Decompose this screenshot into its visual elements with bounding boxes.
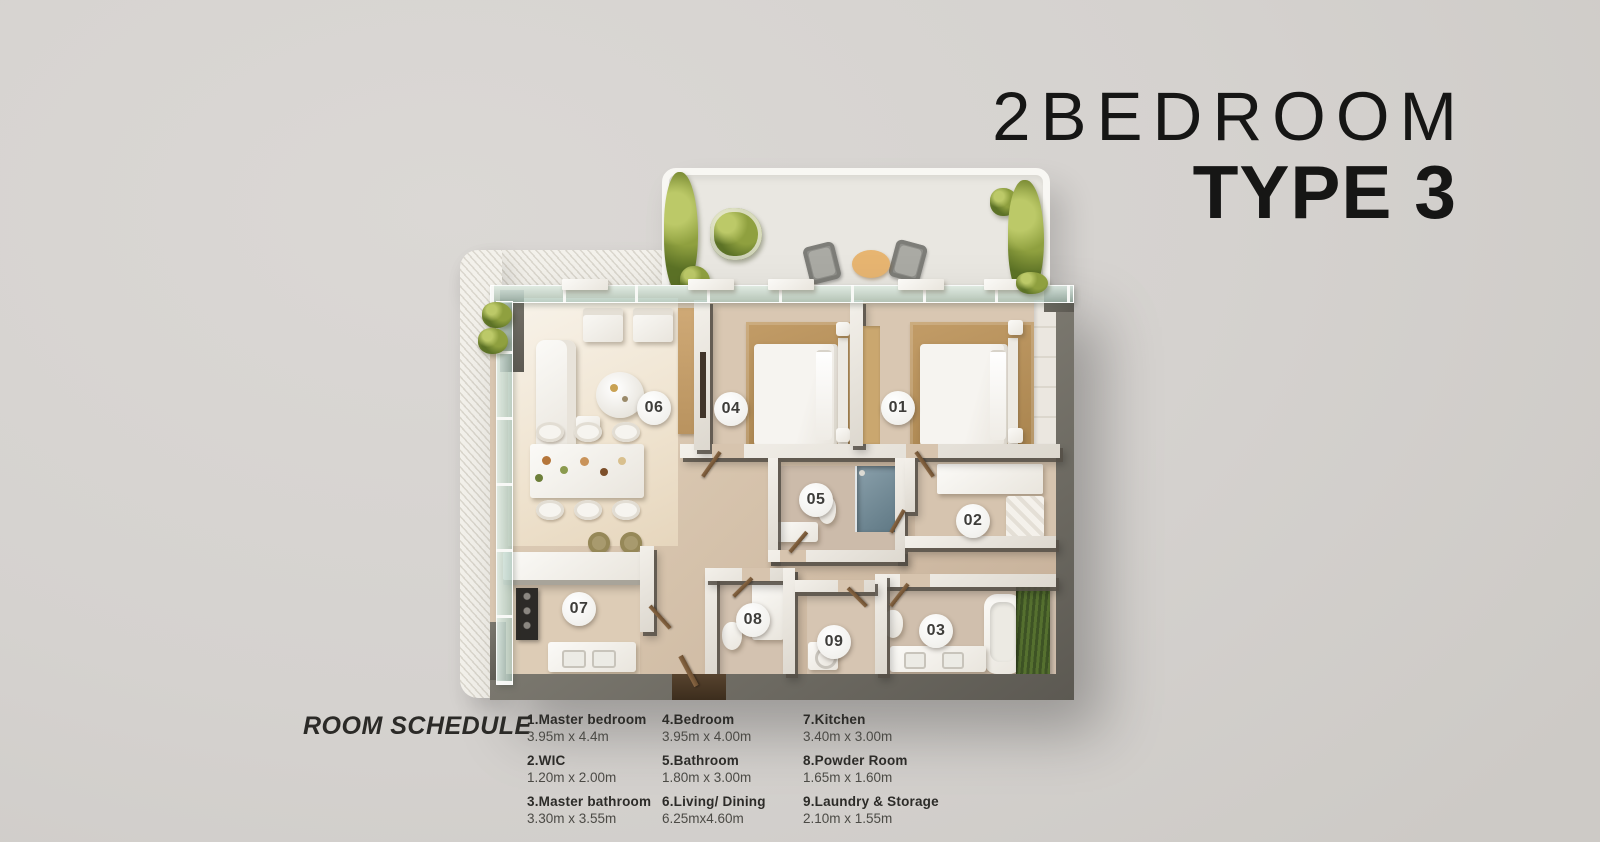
railing-sill <box>688 279 734 290</box>
schedule-room-name: 5.Bathroom <box>662 753 812 769</box>
nightstand <box>836 428 850 442</box>
schedule-room-dims: 2.10m x 1.55m <box>803 811 953 827</box>
bar-stool <box>620 532 642 554</box>
bar-stool <box>588 532 610 554</box>
wall <box>875 574 887 674</box>
wardrobe-bedroom-01 <box>1034 300 1056 446</box>
terrace-side-table <box>852 250 890 278</box>
nightstand <box>1008 428 1023 443</box>
dining-chair <box>574 500 602 520</box>
wall <box>905 536 1056 548</box>
table-plate <box>580 457 589 466</box>
wall <box>905 458 915 512</box>
wall <box>783 568 795 674</box>
railing-sill <box>768 279 814 290</box>
schedule-room-name: 9.Laundry & Storage <box>803 794 953 810</box>
schedule-entry: 9.Laundry & Storage 2.10m x 1.55m <box>803 794 953 827</box>
room-badge-04: 04 <box>714 392 748 426</box>
room-schedule-heading: ROOM SCHEDULE <box>303 712 532 741</box>
balcony-plant-icon <box>478 328 508 354</box>
nightstand <box>836 322 850 336</box>
bathroom-plant-strip-icon <box>1016 584 1050 680</box>
schedule-entry: 2.WIC 1.20m x 2.00m <box>527 753 677 786</box>
schedule-room-name: 2.WIC <box>527 753 677 769</box>
kitchen-sink <box>562 650 586 668</box>
room-badge-03: 03 <box>919 614 953 648</box>
armchair <box>583 308 623 342</box>
schedule-room-dims: 3.30m x 3.55m <box>527 811 677 827</box>
entrance-recess <box>672 674 726 700</box>
schedule-column-3: 7.Kitchen 3.40m x 3.00m 8.Powder Room 1.… <box>803 712 953 835</box>
schedule-entry: 8.Powder Room 1.65m x 1.60m <box>803 753 953 786</box>
room-badge-05: 05 <box>799 483 833 517</box>
terrace-planter-icon <box>710 208 762 260</box>
bed-01-pillows <box>990 350 1006 440</box>
schedule-room-name: 4.Bedroom <box>662 712 812 728</box>
schedule-room-dims: 1.20m x 2.00m <box>527 770 677 786</box>
wall <box>850 300 863 446</box>
schedule-entry: 3.Master bathroom 3.30m x 3.55m <box>527 794 677 827</box>
door-opening <box>780 550 806 562</box>
bathtub-basin <box>990 602 1016 662</box>
armchair <box>633 308 673 342</box>
dining-chair <box>536 422 564 442</box>
wall <box>705 568 717 674</box>
door-opening <box>906 444 938 458</box>
schedule-column-2: 4.Bedroom 3.95m x 4.00m 5.Bathroom 1.80m… <box>662 712 812 835</box>
schedule-entry: 1.Master bedroom 3.95m x 4.4m <box>527 712 677 745</box>
sink <box>942 652 964 669</box>
title-line-1: 2BEDROOM <box>992 82 1467 152</box>
railing-sill <box>898 279 944 290</box>
schedule-entry: 7.Kitchen 3.40m x 3.00m <box>803 712 953 745</box>
railing-plant-icon <box>1016 272 1048 294</box>
schedule-room-name: 7.Kitchen <box>803 712 953 728</box>
schedule-room-dims: 1.80m x 3.00m <box>662 770 812 786</box>
dining-chair <box>574 422 602 442</box>
balcony-plant-icon <box>482 302 512 328</box>
schedule-room-name: 3.Master bathroom <box>527 794 677 810</box>
schedule-column-1: 1.Master bedroom 3.95m x 4.4m 2.WIC 1.20… <box>527 712 677 835</box>
wardrobe-niche <box>863 326 880 444</box>
dining-chair <box>612 500 640 520</box>
schedule-room-dims: 6.25mx4.60m <box>662 811 812 827</box>
schedule-room-dims: 1.65m x 1.60m <box>803 770 953 786</box>
dining-chair <box>612 422 640 442</box>
schedule-room-name: 6.Living/ Dining <box>662 794 812 810</box>
kitchen-bar-counter <box>503 552 642 580</box>
schedule-entry: 4.Bedroom 3.95m x 4.00m <box>662 712 812 745</box>
wall <box>490 674 1074 700</box>
railing-sill <box>562 279 608 290</box>
schedule-entry: 5.Bathroom 1.80m x 3.00m <box>662 753 812 786</box>
room-badge-09: 09 <box>817 625 851 659</box>
cooktop <box>516 588 538 640</box>
page-background: 2BEDROOM TYPE 3 <box>0 0 1600 842</box>
room-badge-07: 07 <box>562 592 596 626</box>
table-plant <box>535 474 543 482</box>
schedule-room-name: 1.Master bedroom <box>527 712 677 728</box>
room-badge-02: 02 <box>956 504 990 538</box>
wic-wardrobe <box>1006 496 1044 538</box>
table-plate <box>542 456 551 465</box>
schedule-room-dims: 3.95m x 4.00m <box>662 729 812 745</box>
coffee-table-decor <box>610 384 618 392</box>
bed-04-pillows <box>816 350 832 440</box>
floor-plan: 01 02 03 04 05 06 07 08 09 <box>450 160 1090 720</box>
schedule-entry: 6.Living/ Dining 6.25mx4.60m <box>662 794 812 827</box>
nightstand <box>1008 320 1023 335</box>
dining-table <box>530 444 644 498</box>
room-badge-01: 01 <box>881 391 915 425</box>
table-plate <box>560 466 568 474</box>
wall <box>1056 298 1074 700</box>
wic-shelf <box>937 464 1043 494</box>
table-plate <box>600 468 608 476</box>
room-badge-06: 06 <box>637 391 671 425</box>
coffee-table-decor <box>622 396 628 402</box>
table-plate <box>618 457 626 465</box>
glass-railing <box>496 301 513 685</box>
kitchen-sink <box>592 650 616 668</box>
room-badge-08: 08 <box>736 603 770 637</box>
schedule-room-dims: 3.40m x 3.00m <box>803 729 953 745</box>
tv-panel <box>700 352 706 418</box>
wall-console <box>678 308 694 434</box>
schedule-room-dims: 3.95m x 4.4m <box>527 729 677 745</box>
schedule-room-name: 8.Powder Room <box>803 753 953 769</box>
sink <box>904 652 926 669</box>
dining-chair <box>536 500 564 520</box>
shower-head-icon <box>859 470 865 476</box>
wall <box>768 458 778 562</box>
wall <box>640 546 654 632</box>
